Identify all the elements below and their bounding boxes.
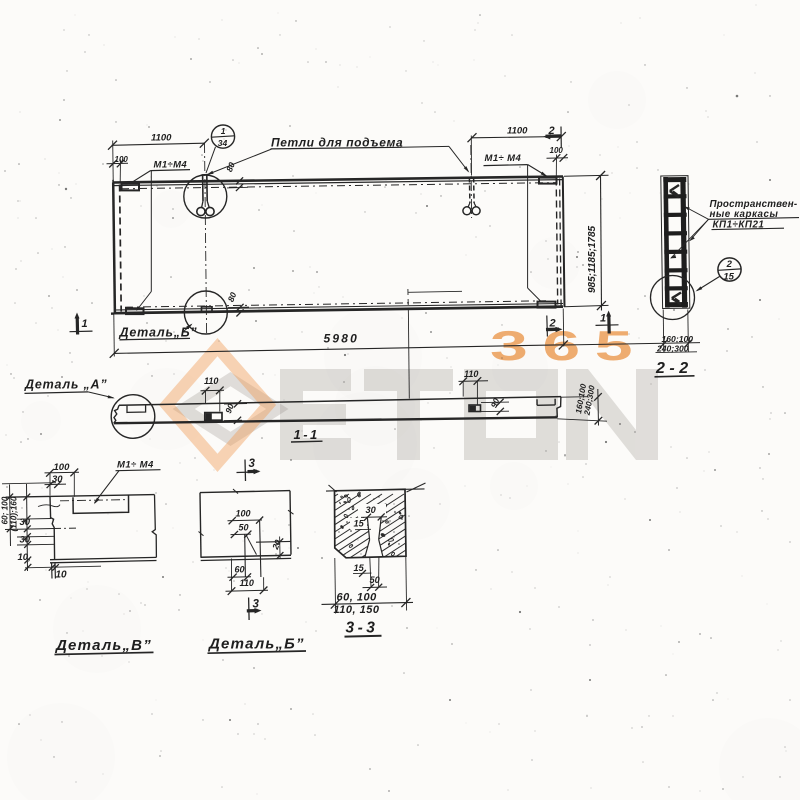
svg-text:М1÷ М4: М1÷ М4 [117,459,154,470]
svg-text:Деталь„Б”: Деталь„Б” [119,326,198,340]
svg-text:985;1185;1785: 985;1185;1785 [587,225,598,293]
svg-text:50: 50 [370,575,381,585]
svg-text:34: 34 [218,138,228,148]
svg-text:1: 1 [82,318,88,330]
svg-text:Деталь„В”: Деталь„В” [54,637,152,654]
svg-text:М1÷М4: М1÷М4 [154,159,188,170]
svg-text:10,: 10, [18,552,31,563]
svg-text:60, 100: 60, 100 [337,592,378,604]
svg-text:60: 60 [235,565,245,575]
svg-text:1-1: 1-1 [294,427,320,442]
svg-text:30: 30 [20,517,31,528]
svg-text:50: 50 [239,523,249,533]
svg-text:30: 30 [20,535,31,546]
svg-text:30: 30 [52,474,63,485]
svg-text:15: 15 [354,563,365,573]
svg-text:15: 15 [723,271,734,282]
svg-text:100: 100 [54,462,71,473]
svg-text:Деталь„Б”: Деталь„Б” [207,636,305,653]
svg-text:3: 3 [253,599,260,611]
svg-text:110: 110 [464,369,478,379]
svg-text:3-3: 3-3 [346,620,379,637]
svg-text:30: 30 [366,505,377,515]
svg-text:100: 100 [236,509,251,519]
svg-text:1: 1 [221,126,226,136]
svg-text:100: 100 [115,155,129,164]
svg-text:2-2: 2-2 [655,360,693,377]
svg-text:2: 2 [726,259,733,270]
svg-text:5980: 5980 [324,332,360,346]
svg-text:10: 10 [56,570,68,581]
svg-text:М1÷ М4: М1÷ М4 [485,153,522,164]
svg-text:2: 2 [549,317,556,329]
svg-text:110, 150: 110, 150 [334,604,380,616]
svg-text:(110);160: (110);160 [10,496,19,531]
svg-text:3: 3 [249,458,256,470]
svg-text:2: 2 [548,125,555,137]
svg-text:Деталь „А”: Деталь „А” [24,378,107,392]
svg-text:1: 1 [600,313,606,325]
svg-text:15: 15 [354,519,365,529]
svg-text:110: 110 [204,376,218,386]
svg-text:110: 110 [240,578,254,588]
svg-text:1100: 1100 [151,133,172,144]
svg-text:60; 100: 60; 100 [1,496,10,524]
svg-text:1100: 1100 [507,126,528,137]
